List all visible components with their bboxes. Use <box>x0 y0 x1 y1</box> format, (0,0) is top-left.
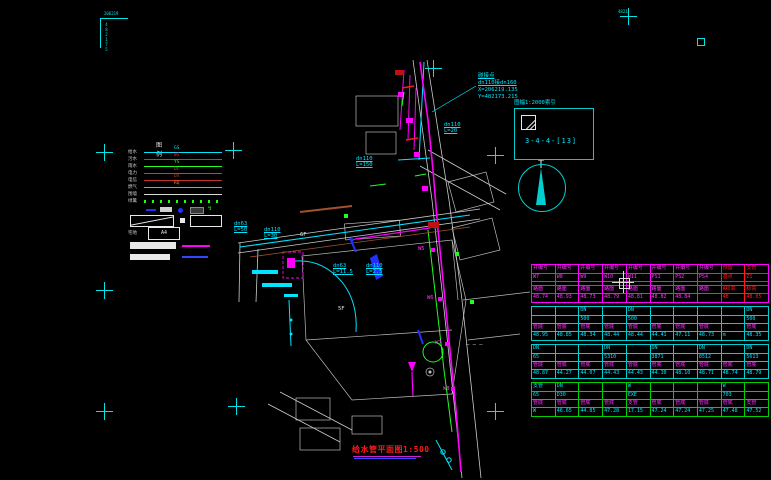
table-cell: 703 <box>721 391 745 399</box>
table-cell <box>650 307 674 315</box>
table-cell: 管底 <box>602 399 626 407</box>
table-cell <box>673 353 697 361</box>
manhole-symbol-icon <box>178 208 183 213</box>
table-cell: 44.43 <box>602 369 626 378</box>
table-cell: 47.48 <box>721 407 745 416</box>
table-cell: EXE <box>626 391 650 399</box>
table-section-3: DNDNDNDNDN655310387185125613管底管底管底管底管底管底… <box>531 344 769 379</box>
pipe-label: dn110L=150 <box>356 156 373 168</box>
table-cell: 3871 <box>650 353 674 361</box>
table-cell: 48.35 <box>744 331 768 340</box>
table-cell <box>578 383 602 391</box>
table-cell: W <box>721 383 745 391</box>
table-cell: 管底 <box>697 323 721 331</box>
pipe-label: dn63L=50 <box>234 221 247 233</box>
table-cell: 48.81 <box>626 293 650 302</box>
pipe-label: W7 <box>435 340 442 346</box>
table-cell <box>626 353 650 361</box>
table-cell <box>673 383 697 391</box>
table-cell: 支管 <box>626 399 650 407</box>
table-cell: 支管 <box>744 399 768 407</box>
table-cell: 48.44 <box>626 331 650 340</box>
table-cell: 47.52 <box>744 407 768 416</box>
table-cell: 65 <box>532 353 555 361</box>
legend-plot-row: 宅地 A4 <box>128 227 224 240</box>
table-cell: 65 <box>532 391 555 399</box>
pipe-label: 6F <box>300 232 307 238</box>
table-cell: 井编号 <box>555 265 579 273</box>
meter-symbol-icon <box>190 207 204 214</box>
connection-callout: 碰接点 dn110接dn160 X=206219.135 Y=482173.21… <box>478 73 518 101</box>
table-cell <box>721 315 745 323</box>
legend-row-label: 电信 <box>128 177 142 183</box>
legend-scalebar-1 <box>128 240 224 252</box>
grid-tick-mark <box>697 38 705 46</box>
legend-line-sample <box>144 187 222 188</box>
table-cell: 47.11 <box>673 331 697 340</box>
table-cell <box>744 383 768 391</box>
table-cell <box>602 315 626 323</box>
table-row: 500500500 <box>532 315 768 323</box>
legend-row-label: 绿篱 <box>128 198 142 204</box>
table-cell: DN <box>626 307 650 315</box>
table-cell: 500 <box>744 315 768 323</box>
table-cell: W7 <box>532 273 555 281</box>
table-cell <box>650 383 674 391</box>
magenta-line-sample <box>182 245 210 247</box>
table-cell: 5613 <box>744 353 768 361</box>
table-cell: 路面 <box>555 285 579 293</box>
table-cell: DN <box>602 345 626 353</box>
table-cell: Z1 <box>744 273 768 281</box>
legend-row-code: YS <box>174 160 179 165</box>
table-cell: 500 <box>578 315 602 323</box>
table-cell: 48.87 <box>532 369 555 378</box>
table-row: W7W8W9W10W11PS1PS2PS4基点Z1 <box>532 273 768 281</box>
table-cell: 48.79 <box>602 293 626 302</box>
table-cell: 44.10 <box>650 369 674 378</box>
table-cell: D30 <box>555 391 579 399</box>
table-cell: 井编号 <box>650 265 674 273</box>
table-cell: 管底 <box>697 399 721 407</box>
table-cell <box>650 391 674 399</box>
table-cell: 管底 <box>602 323 626 331</box>
pipe-label: — — — <box>466 342 483 348</box>
legend-row-label: 雨水 <box>128 163 142 169</box>
table-cell: 48.71 <box>697 369 721 378</box>
table-cell: 路面 <box>532 285 555 293</box>
table-cell: 管底 <box>532 361 555 369</box>
index-box-caption: 图幅1:2000索引 <box>514 98 556 106</box>
table-cell: 48.34 <box>578 331 602 340</box>
point-box-icon <box>180 218 185 223</box>
table-row: 48.8744.2744.0744.4344.4344.1048.1048.71… <box>532 369 768 378</box>
pipe-label: dn110L=20 <box>444 122 461 134</box>
table-cell: 48.10 <box>673 369 697 378</box>
plot-box-code: A4 <box>148 227 180 240</box>
table-cell: 井编号 <box>673 265 697 273</box>
pipe-label: dn110L=2.5 <box>366 263 383 275</box>
table-cell: DN <box>578 307 602 315</box>
table-cell: 管底 <box>673 361 697 369</box>
pipe-label: W8 <box>443 386 450 392</box>
table-cell: 管底 <box>555 399 579 407</box>
table-cell: 17.15 <box>626 407 650 416</box>
table-section-2: DNDNDN500500500管底管底管底管底管底管底管底管底管底48.9548… <box>531 306 769 341</box>
table-cell: 48.85 <box>555 331 579 340</box>
table-row: 655310387185125613 <box>532 353 768 361</box>
table-row: 管底管底管底管底管底管底管底管底管底 <box>532 323 768 331</box>
table-cell: 44.43 <box>626 369 650 378</box>
legend-row-code: WS <box>174 153 179 158</box>
table-cell: 支管 <box>532 383 555 391</box>
blue-line-sample <box>182 256 208 258</box>
table-cell: 管底 <box>578 399 602 407</box>
table-row: W46.6544.8547.2817.1547.2447.2447.2547.4… <box>532 407 768 416</box>
table-row: 48.9548.8548.3448.4448.4444.4147.1148.73… <box>532 331 768 340</box>
table-cell <box>721 345 745 353</box>
legend-boxes-row <box>128 214 224 227</box>
legend-row-燃气: 燃气RQ <box>128 184 224 191</box>
legend-row-code: RQ <box>174 181 179 186</box>
table-cell <box>578 345 602 353</box>
table-cell: 管底 <box>673 399 697 407</box>
table-cell: 支管 <box>744 265 768 273</box>
table-cell: DN <box>555 383 579 391</box>
table-cell: 44.27 <box>555 369 579 378</box>
table-cell: W <box>626 383 650 391</box>
table-cell <box>532 307 555 315</box>
table-cell: 管底 <box>650 323 674 331</box>
legend-row-label: 电力 <box>128 170 142 176</box>
index-hatch-icon <box>521 115 536 130</box>
slope-box-icon <box>130 215 174 227</box>
table-cell: 井编号 <box>697 265 721 273</box>
legend-row-label: 围墙 <box>128 191 142 197</box>
table-cell: 44.85 <box>578 407 602 416</box>
table-cell <box>602 307 626 315</box>
table-cell: W <box>532 407 555 416</box>
legend-row-围墙: 围墙 <box>128 191 224 198</box>
pipe-data-table: 井编号井编号井编号井编号井编号井编号井编号井编号预留支管W7W8W9W10W11… <box>531 264 769 420</box>
legend-line-sample <box>144 194 222 195</box>
table-cell: 48.79 <box>744 369 768 378</box>
legend-row-绿篱: 绿篱 <box>128 198 224 205</box>
pipe-label: 5F <box>338 306 345 312</box>
table-cell: 48.93 <box>555 293 579 302</box>
table-cell <box>673 307 697 315</box>
table-cell <box>744 391 768 399</box>
table-cell: DN <box>744 307 768 315</box>
legend-symbols-row: ↯ <box>128 205 224 214</box>
table-cell: 路面 <box>578 285 602 293</box>
grid-coord-top-right: 4821 <box>618 10 628 14</box>
legend-row-code: DL <box>174 167 179 172</box>
table-cell: 管底 <box>555 323 579 331</box>
table-cell <box>721 353 745 361</box>
table-cell: 管底 <box>697 361 721 369</box>
table-cell <box>532 315 555 323</box>
callout-coord-y: Y=482173.215 <box>478 94 518 101</box>
table-cell <box>555 315 579 323</box>
table-cell: 管底 <box>721 361 745 369</box>
table-cell: 标高 <box>744 285 768 293</box>
legend-title: 图 例 <box>156 140 224 149</box>
table-cell: A标高 <box>721 285 745 293</box>
table-row: 48.7448.9348.7348.7948.8148.8248.844848.… <box>532 293 768 302</box>
valve-symbol-icon <box>160 207 172 212</box>
table-row: 65D30EXE703 <box>532 391 768 399</box>
table-row: 管底管底管底管底支管管底管底管底管底支管 <box>532 399 768 407</box>
table-cell: 44.41 <box>650 331 674 340</box>
table-cell <box>697 315 721 323</box>
table-cell: 预留 <box>721 265 745 273</box>
table-cell: 管底 <box>626 323 650 331</box>
pipe-label: dn63L=11.5 <box>333 263 353 275</box>
table-cell <box>697 383 721 391</box>
legend-line-sample <box>144 152 222 153</box>
table-cell: 48.74 <box>721 369 745 378</box>
legend-row-label: 污水 <box>128 156 142 162</box>
table-cell: 路面 <box>650 285 674 293</box>
table-cell: W8 <box>555 273 579 281</box>
index-box: 3-4-4-[13] <box>514 108 594 160</box>
table-cell <box>602 383 626 391</box>
building-outlines <box>296 96 530 450</box>
table-cell <box>650 315 674 323</box>
grid-coord-x: 206219 <box>104 12 118 16</box>
table-cell: 5310 <box>602 353 626 361</box>
table-cell: 管底 <box>744 361 768 369</box>
table-cell <box>673 315 697 323</box>
table-cell: 管底 <box>673 323 697 331</box>
table-cell: 48.44 <box>602 331 626 340</box>
table-cell: 井编号 <box>532 265 555 273</box>
table-cell: 48.73 <box>697 331 721 340</box>
table-cell: 47.28 <box>602 407 626 416</box>
legend-line-sample <box>144 166 222 167</box>
table-cell <box>578 353 602 361</box>
table-cell: W9 <box>578 273 602 281</box>
table-section-1: 井编号井编号井编号井编号井编号井编号井编号井编号预留支管W7W8W9W10W11… <box>531 264 769 303</box>
table-cell: 基点 <box>721 273 745 281</box>
table-row: 支管DNWW <box>532 383 768 391</box>
table-cell <box>697 307 721 315</box>
other-utilities <box>250 70 470 344</box>
table-cell: 管底 <box>650 399 674 407</box>
title-underline <box>353 456 421 457</box>
title-underline-2 <box>354 458 416 459</box>
table-row: 管底管底管底管底管底管底管底管底管底管底 <box>532 361 768 369</box>
legend-row-label: 燃气 <box>128 184 142 190</box>
table-cell: DN <box>744 345 768 353</box>
table-cell: 47.24 <box>650 407 674 416</box>
table-cell: 管底 <box>578 361 602 369</box>
cad-drawing-canvas[interactable]: 206219 482175 4821 图 例 给水GS污水WS雨水YS电力DL电… <box>0 0 771 480</box>
table-cell: 48.73 <box>578 293 602 302</box>
table-cell: PS1 <box>650 273 674 281</box>
pipe-label: dn110L=30 <box>264 227 281 239</box>
table-cell: 管底 <box>721 399 745 407</box>
plot-box-label: 宅地 <box>128 230 142 236</box>
grid-coord-y: 482175 <box>104 22 108 50</box>
table-cell: 路面 <box>673 285 697 293</box>
table-cell: 47.24 <box>673 407 697 416</box>
table-row: DNDNDNDNDN <box>532 345 768 353</box>
table-cell: 管底 <box>578 323 602 331</box>
north-arrow-circle <box>518 164 566 212</box>
table-cell <box>721 323 745 331</box>
callout-coord-x: X=206219.135 <box>478 87 518 94</box>
table-cell: DN <box>650 345 674 353</box>
table-cell: m <box>721 331 745 340</box>
table-cell <box>626 345 650 353</box>
drawing-title: 给水管平面图1:500 <box>352 444 430 455</box>
table-cell <box>602 391 626 399</box>
table-cell: 管底 <box>626 361 650 369</box>
table-row: DNDNDN <box>532 307 768 315</box>
table-cell: 管底 <box>602 361 626 369</box>
pipe-label: W6 <box>427 295 434 301</box>
legend-row-code: DX <box>174 174 179 179</box>
pipe-label: W5 <box>418 246 425 252</box>
table-row: 路面路面路面路面路面路面路面路面A标高标高 <box>532 285 768 293</box>
table-cell: 48.95 <box>532 331 555 340</box>
legend-dotted-line <box>144 200 222 203</box>
table-cell <box>697 293 721 302</box>
table-cell <box>578 391 602 399</box>
table-cell: 路面 <box>697 285 721 293</box>
existing-water-main <box>240 62 470 470</box>
empty-box-icon <box>190 215 222 227</box>
tree-symbol-icon: ↯ <box>208 205 212 212</box>
table-cell: 48 <box>721 293 745 302</box>
table-cell: 44.07 <box>578 369 602 378</box>
table-cell: PS4 <box>697 273 721 281</box>
table-cell <box>555 353 579 361</box>
legend-scalebar-2 <box>128 252 224 264</box>
table-cell: 47.25 <box>697 407 721 416</box>
table-cell: 管底 <box>532 323 555 331</box>
table-cell: 管底 <box>744 323 768 331</box>
table-cell: 48.84 <box>673 293 697 302</box>
table-cell: PS2 <box>673 273 697 281</box>
callout-line: 碰接点 <box>478 73 518 80</box>
table-cell: 500 <box>626 315 650 323</box>
table-cell: 48.05 <box>744 293 768 302</box>
table-cell: 井编号 <box>626 265 650 273</box>
table-cell: 48.82 <box>650 293 674 302</box>
legend-line-sample <box>144 180 222 181</box>
table-cell <box>721 307 745 315</box>
legend-row-label: 给水 <box>128 149 142 155</box>
table-cell <box>697 391 721 399</box>
table-cell: 管底 <box>555 361 579 369</box>
table-cell: 管底 <box>532 399 555 407</box>
legend-line-sample <box>144 173 222 174</box>
index-sheet-code: 3-4-4-[13] <box>525 137 577 145</box>
table-cell: 8512 <box>697 353 721 361</box>
legend-line-sample <box>144 159 222 160</box>
table-cell <box>555 345 579 353</box>
table-cell: 管底 <box>650 361 674 369</box>
hydrant-symbol-icon <box>146 209 156 211</box>
table-section-4: 支管DNWW65D30EXE703管底管底管底管底支管管底管底管底管底支管W46… <box>531 382 769 417</box>
table-cell: 井编号 <box>578 265 602 273</box>
table-cell: 46.65 <box>555 407 579 416</box>
callout-leader-line <box>432 86 476 112</box>
callout-line: dn110接dn160 <box>478 80 518 87</box>
table-cell: DN <box>697 345 721 353</box>
legend: 图 例 给水GS污水WS雨水YS电力DL电信DX燃气RQ围墙绿篱 ↯ 宅地 A4 <box>128 140 224 264</box>
table-cell <box>673 345 697 353</box>
table-row: 井编号井编号井编号井编号井编号井编号井编号井编号预留支管 <box>532 265 768 273</box>
table-cell <box>673 391 697 399</box>
table-cell <box>555 307 579 315</box>
table-cell: DN <box>532 345 555 353</box>
table-cell: 48.74 <box>532 293 555 302</box>
legend-row-code: GS <box>174 146 179 151</box>
